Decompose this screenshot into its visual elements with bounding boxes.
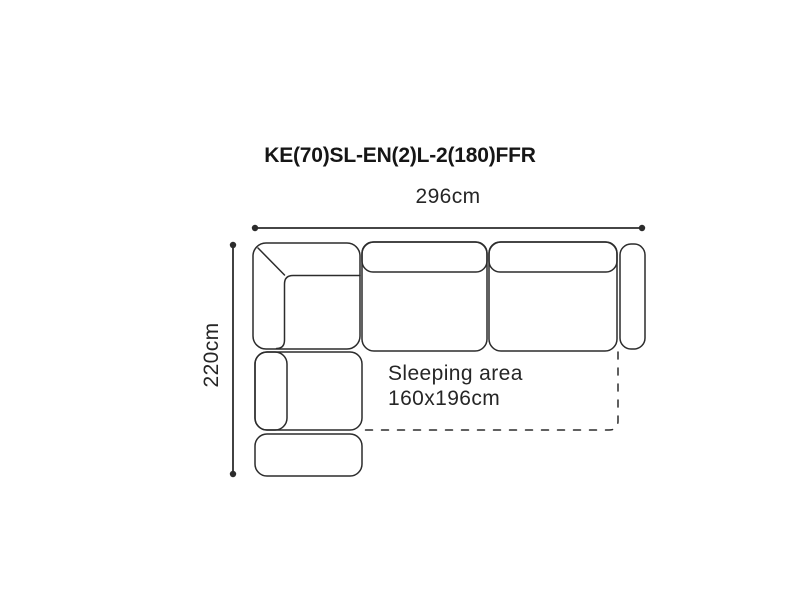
width-dimension-label: 296cm	[350, 185, 546, 209]
seat-1-backrest-shape	[362, 242, 487, 272]
sleeping-area-label: Sleeping area 160x196cm	[388, 362, 523, 411]
diagram-canvas	[0, 0, 800, 600]
seat-1-shape	[362, 242, 487, 351]
sleeping-area-label-line2: 160x196cm	[388, 387, 523, 412]
chaise-shape	[255, 352, 362, 430]
width-dimension-right-dot	[639, 225, 645, 231]
sofa-outline	[253, 242, 645, 476]
footstool-shape	[255, 434, 362, 476]
height-dimension-bottom-dot	[230, 471, 236, 477]
height-dimension-top-dot	[230, 242, 236, 248]
sleeping-area-label-line1: Sleeping area	[388, 362, 523, 387]
corner-unit-backrest-line	[277, 276, 361, 349]
chaise-side-strip-shape	[255, 352, 287, 430]
corner-unit-miter-line	[258, 248, 285, 275]
width-dimension-line	[252, 225, 645, 231]
seat-2-shape	[489, 242, 617, 351]
width-dimension-left-dot	[252, 225, 258, 231]
right-armrest-shape	[620, 244, 645, 349]
product-code-title: KE(70)SL-EN(2)L-2(180)FFR	[0, 144, 800, 168]
height-dimension-line	[230, 242, 236, 477]
seat-2-backrest-shape	[489, 242, 617, 272]
height-dimension-label: 220cm	[200, 295, 224, 415]
sofa-dimension-diagram: KE(70)SL-EN(2)L-2(180)FFR 296cm 220cm Sl…	[0, 0, 800, 600]
